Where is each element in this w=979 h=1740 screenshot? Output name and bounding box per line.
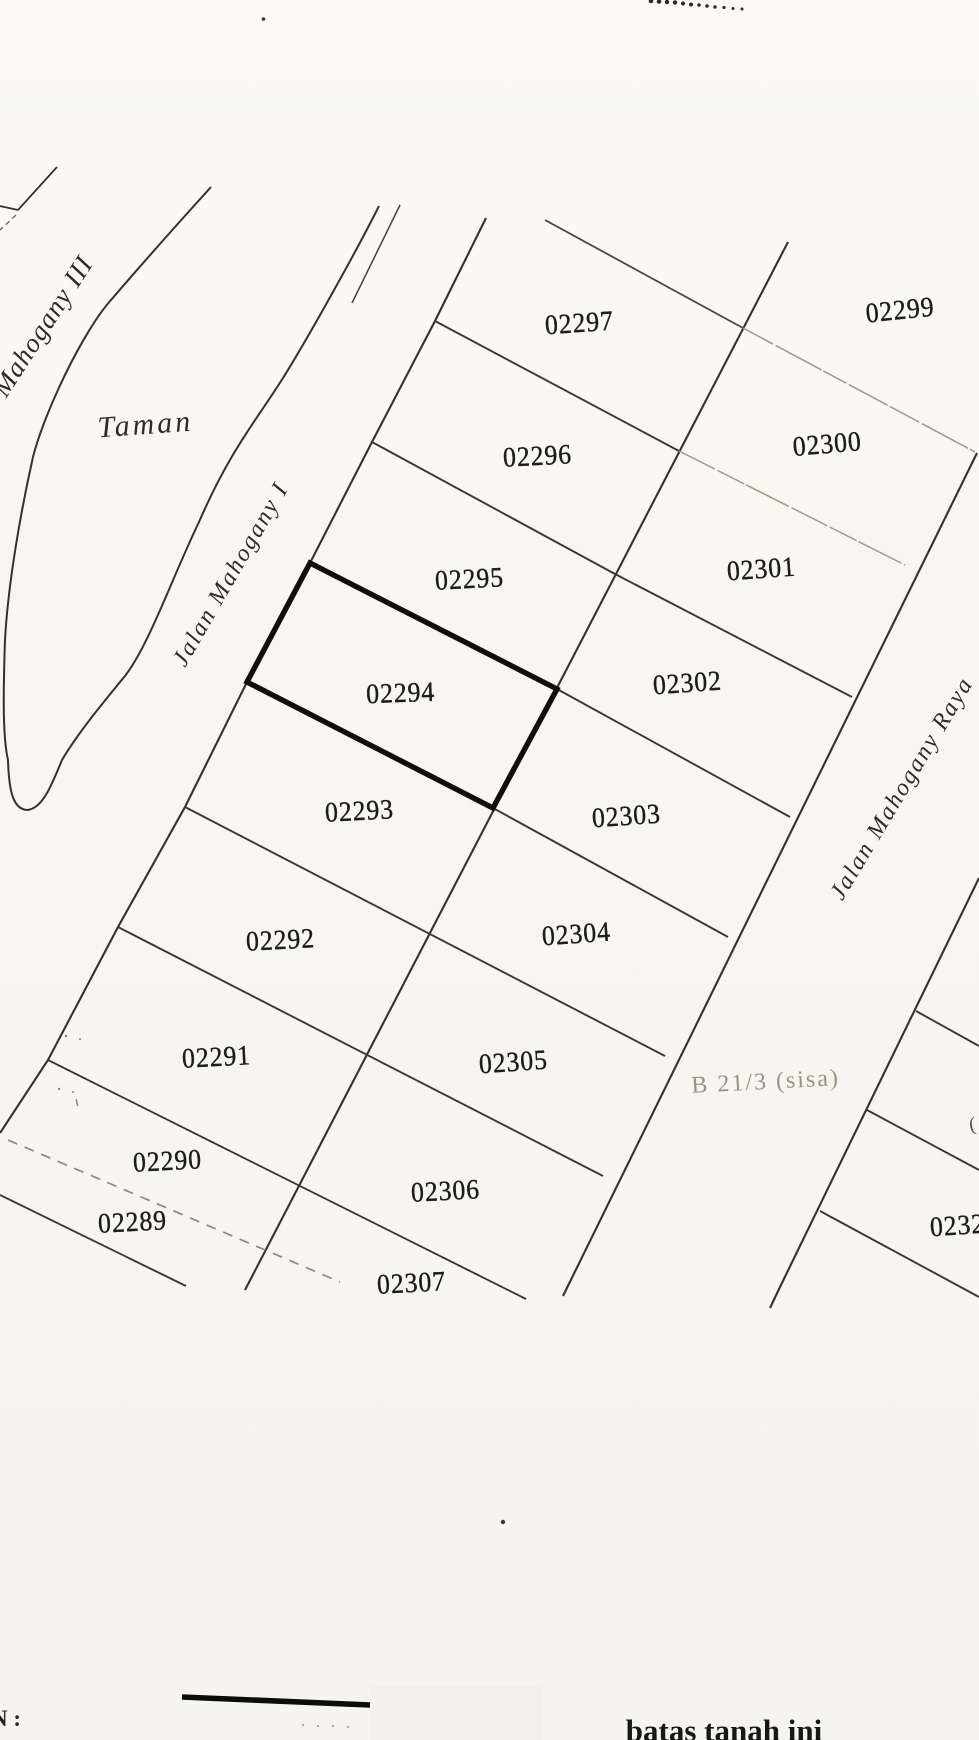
svg-text:02289: 02289 [97,1204,168,1239]
svg-text:02303: 02303 [591,798,662,834]
svg-text:02291: 02291 [181,1039,252,1074]
svg-text:02304: 02304 [541,916,612,952]
svg-text:02302: 02302 [652,665,723,701]
svg-text:02306: 02306 [410,1173,481,1208]
svg-text:02320: 02320 [929,1207,979,1243]
svg-text:02293: 02293 [324,793,395,828]
svg-text:02297: 02297 [544,305,615,341]
svg-text:02301: 02301 [726,551,797,587]
svg-text:02300: 02300 [791,425,862,462]
svg-text:02290: 02290 [132,1143,203,1178]
svg-text:02305: 02305 [478,1044,549,1080]
svg-text:Taman: Taman [96,405,194,445]
svg-text:02294: 02294 [366,676,436,710]
svg-text:batas tanah ini: batas tanah ini [626,1713,823,1740]
svg-text:02292: 02292 [245,922,316,957]
svg-text:02296: 02296 [502,438,573,473]
svg-text:02295: 02295 [434,561,505,596]
svg-text:N :: N : [0,1706,21,1731]
svg-text:02307: 02307 [376,1265,447,1300]
